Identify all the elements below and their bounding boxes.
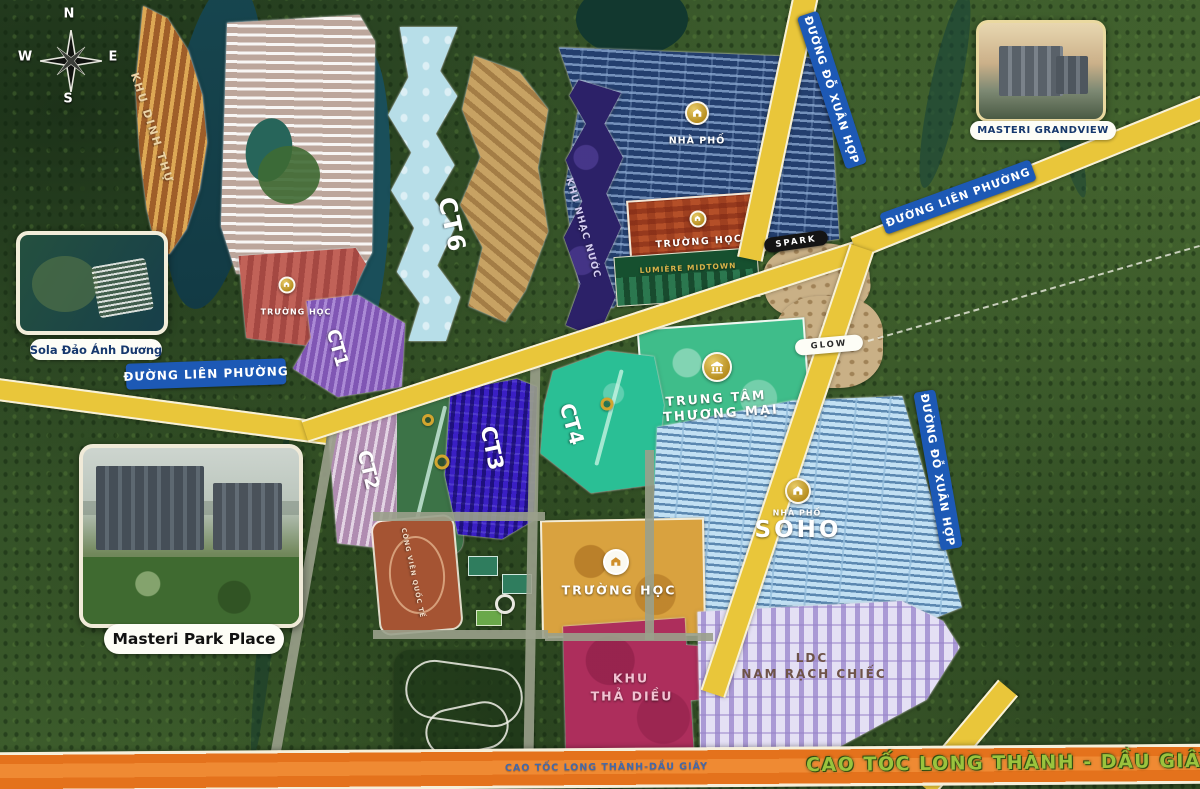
- inset-grandview-label: MASTERI GRANDVIEW: [970, 121, 1116, 140]
- inset-sola-rows: [91, 258, 154, 319]
- zone-label-soho: SOHO: [755, 517, 842, 543]
- zone-towers-midrise: [446, 56, 548, 322]
- playground-ring-icon: [601, 398, 614, 411]
- street-south-horizontal: [373, 630, 548, 639]
- compass-west-label: W: [18, 50, 32, 65]
- highway-label-small: CAO TỐC LONG THÀNH-DẦU GIÂY: [505, 761, 708, 774]
- school-icon: [603, 549, 629, 575]
- inset-sola-land: [32, 256, 98, 312]
- playground-ring-icon: [422, 414, 434, 426]
- compass-rose-icon: [40, 30, 102, 92]
- inset-park-place-park: [83, 557, 299, 624]
- townhouse-icon: [685, 101, 709, 125]
- playground-ring-icon: [435, 455, 450, 470]
- inset-park-place-photo: [79, 444, 303, 628]
- townhouse-icon: [785, 478, 811, 504]
- masterplan-map: KHU DINH THỰ TRƯỜNG HỌC CT1 CT6 KHU NHẠC…: [0, 0, 1200, 789]
- zone-khu-dinh-thu: [113, 6, 207, 254]
- inset-grandview-towers: [999, 46, 1063, 96]
- villa-garden: [258, 146, 320, 204]
- compass-east-label: E: [109, 50, 118, 65]
- zone-towers-midrise-fill: [446, 56, 548, 322]
- street-soho-west: [645, 450, 654, 640]
- street-mid-horizontal: [373, 512, 545, 521]
- zone-label-tha-dieu-line2: THẢ DIỀU: [591, 689, 674, 704]
- stream-northeast: [910, 0, 981, 191]
- zone-label-ldc-line1: LDC: [796, 651, 828, 665]
- zone-khu-dinh-thu-fill: [113, 6, 207, 254]
- inset-park-place-towers-right: [213, 483, 282, 550]
- compass-north-label: N: [64, 7, 75, 22]
- sports-court-1: [468, 556, 498, 576]
- zone-label-ldc-line2: NAM RẠCH CHIẾC: [741, 667, 886, 681]
- inset-sola-photo: [16, 231, 168, 335]
- planned-road-dashed: [868, 245, 1200, 342]
- zone-label-tha-dieu-line1: KHU: [613, 671, 649, 686]
- zone-label-truong-hoc-south: TRƯỜNG HỌC: [562, 583, 677, 598]
- zone-label-nha-pho-north: NHÀ PHỐ: [669, 136, 726, 147]
- sports-field: [476, 610, 502, 626]
- compass-south-label: S: [63, 92, 72, 107]
- road-badge-lien-phuong-west: ĐƯỜNG LIÊN PHƯỜNG: [126, 358, 287, 390]
- highway-label-large: CAO TỐC LONG THÀNH - DẦU GIÂY: [806, 750, 1200, 776]
- zone-label-truong-hoc-northwest: TRƯỜNG HỌC: [261, 308, 332, 317]
- inset-grandview-towers-2: [1056, 56, 1088, 94]
- zone-kart-track: [394, 650, 534, 764]
- stadium-ring-icon: [495, 594, 515, 614]
- school-icon: [279, 277, 296, 294]
- inset-park-place-towers-left: [96, 466, 204, 550]
- school-icon: [690, 211, 707, 228]
- inset-sola-label: Sola Đảo Ánh Dương: [30, 339, 162, 360]
- inset-park-place-label: Masteri Park Place: [104, 624, 284, 654]
- inset-grandview-photo: [976, 20, 1106, 122]
- mall-icon: [702, 352, 732, 382]
- street-school-south: [545, 633, 713, 641]
